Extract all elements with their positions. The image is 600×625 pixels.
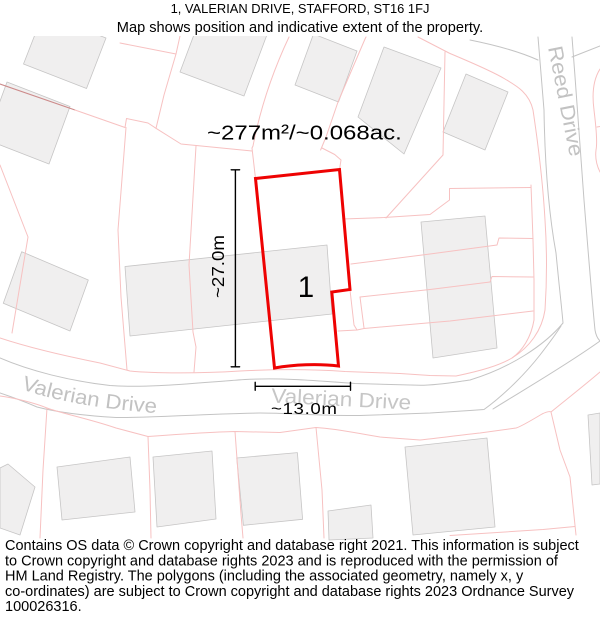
svg-text:Map shows position and indicat: Map shows position and indicative extent…: [117, 20, 483, 36]
svg-text:HM Land Registry. The polygons: HM Land Registry. The polygons (includin…: [5, 569, 524, 585]
svg-text:~27.0m: ~27.0m: [207, 235, 227, 298]
svg-text:to Crown copyright and databas: to Crown copyright and database rights 2…: [5, 553, 559, 569]
svg-text:co-ordinates) are subject to C: co-ordinates) are subject to Crown copyr…: [5, 584, 575, 600]
svg-text:Contains OS data © Crown copyr: Contains OS data © Crown copyright and d…: [5, 538, 579, 554]
svg-text:~13.0m: ~13.0m: [271, 399, 337, 417]
svg-text:~277m²/~0.068ac.: ~277m²/~0.068ac.: [207, 121, 402, 144]
svg-text:1, VALERIAN DRIVE, STAFFORD, S: 1, VALERIAN DRIVE, STAFFORD, ST16 1FJ: [171, 1, 430, 16]
svg-text:1: 1: [298, 271, 314, 304]
svg-text:100026316.: 100026316.: [5, 599, 82, 615]
